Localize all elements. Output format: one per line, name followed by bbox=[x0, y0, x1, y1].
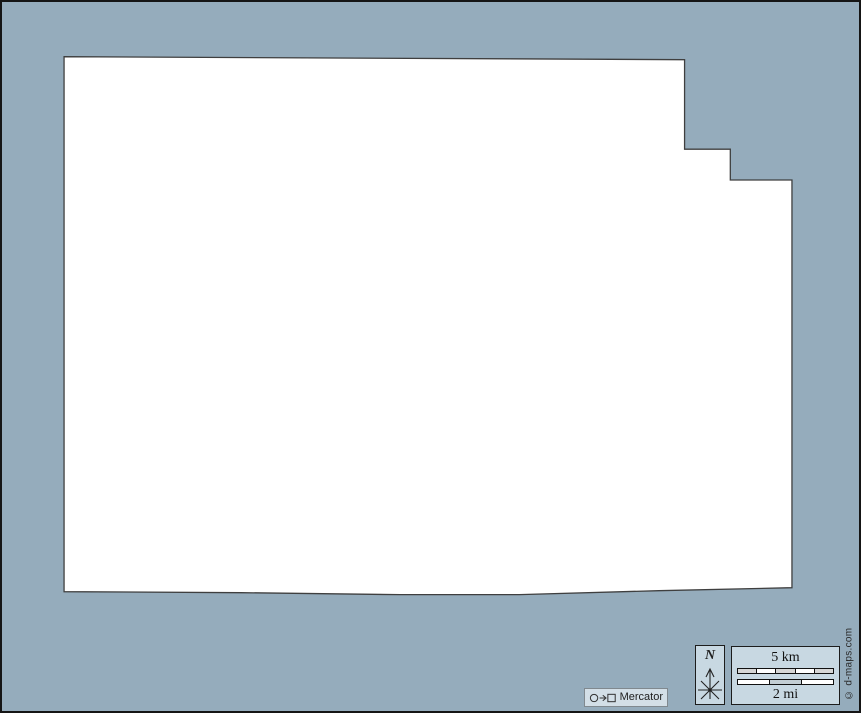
projection-badge: Mercator bbox=[584, 688, 668, 707]
scale-bar-segment bbox=[775, 669, 794, 673]
north-arrow-icon bbox=[695, 663, 725, 703]
scale-bar-km bbox=[737, 668, 834, 674]
map-canvas bbox=[2, 2, 859, 711]
copyright-credit: © d-maps.com bbox=[840, 628, 858, 713]
scale-box: 5 km 2 mi bbox=[731, 646, 840, 705]
scale-km-label: 5 km bbox=[771, 651, 799, 665]
scale-bar-segment bbox=[738, 669, 756, 673]
map-outline bbox=[64, 57, 792, 595]
compass-box: N bbox=[695, 645, 725, 705]
scale-bar-segment bbox=[756, 669, 775, 673]
scale-bar-segment bbox=[801, 680, 833, 684]
scale-bar-segment bbox=[769, 680, 801, 684]
scale-bar-segment bbox=[738, 680, 769, 684]
scale-bar-segment bbox=[814, 669, 833, 673]
projection-label: Mercator bbox=[620, 692, 663, 703]
north-label: N bbox=[705, 649, 715, 663]
page: Mercator N 5 km 2 mi © d-maps.com bbox=[0, 0, 861, 713]
scale-bar-mi bbox=[737, 679, 834, 685]
scale-bar-segment bbox=[795, 669, 814, 673]
projection-transform-icon bbox=[589, 692, 617, 704]
scale-mi-label: 2 mi bbox=[773, 688, 798, 702]
